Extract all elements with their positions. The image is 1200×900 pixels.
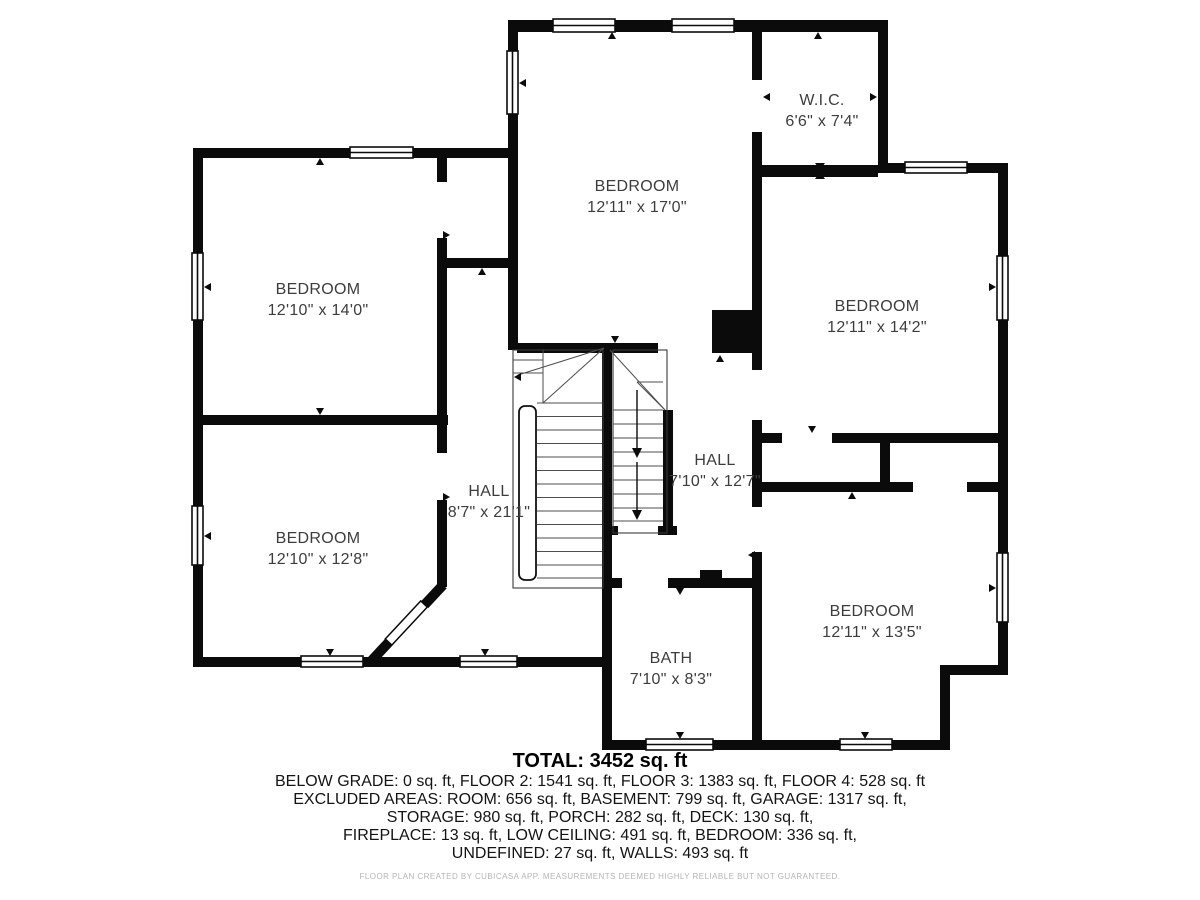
window: [192, 506, 203, 565]
room-label-hall-west: HALL 8'7" x 21'1": [448, 481, 530, 523]
window: [997, 553, 1008, 622]
window: [350, 147, 413, 158]
room-label-bedroom-upper-left: BEDROOM 12'10" x 14'0": [268, 279, 369, 321]
window: [507, 51, 518, 114]
summary-line: BELOW GRADE: 0 sq. ft, FLOOR 2: 1541 sq.…: [0, 773, 1200, 791]
floor-plan-drawing: [0, 0, 1200, 760]
room-dimensions: 7'10" x 12'7": [669, 471, 761, 492]
summary-line: FIREPLACE: 13 sq. ft, LOW CEILING: 491 s…: [0, 827, 1200, 845]
room-label-bedroom-lower-right: BEDROOM 12'11" x 13'5": [822, 601, 922, 643]
room-name: W.I.C.: [785, 90, 858, 111]
room-label-bedroom-lower-left: BEDROOM 12'10" x 12'8": [268, 528, 369, 570]
room-dimensions: 12'11" x 13'5": [822, 622, 922, 643]
room-dimensions: 7'10" x 8'3": [630, 669, 712, 690]
window: [553, 19, 615, 32]
summary-line: UNDEFINED: 27 sq. ft, WALLS: 493 sq. ft: [0, 845, 1200, 863]
window: [905, 162, 967, 173]
room-dimensions: 12'11" x 17'0": [587, 197, 687, 218]
window: [192, 253, 203, 320]
room-label-wic: W.I.C. 6'6" x 7'4": [785, 90, 858, 132]
staircase: [513, 348, 667, 588]
room-name: HALL: [669, 450, 761, 471]
room-dimensions: 12'10" x 12'8": [268, 549, 369, 570]
floor-plan-page: BEDROOM 12'10" x 14'0" BEDROOM 12'10" x …: [0, 0, 1200, 900]
room-label-hall-east: HALL 7'10" x 12'7": [669, 450, 761, 492]
summary-line: EXCLUDED AREAS: ROOM: 656 sq. ft, BASEME…: [0, 791, 1200, 809]
disclaimer-note: FLOOR PLAN CREATED BY CUBICASA APP. MEAS…: [0, 872, 1200, 881]
area-summary: TOTAL: 3452 sq. ft BELOW GRADE: 0 sq. ft…: [0, 749, 1200, 863]
room-name: BEDROOM: [827, 296, 927, 317]
summary-line: STORAGE: 980 sq. ft, PORCH: 282 sq. ft, …: [0, 809, 1200, 827]
room-dimensions: 6'6" x 7'4": [785, 111, 858, 132]
room-dimensions: 8'7" x 21'1": [448, 502, 530, 523]
room-dimensions: 12'11" x 14'2": [827, 317, 927, 338]
room-name: BEDROOM: [587, 176, 687, 197]
window: [301, 656, 363, 667]
room-name: BEDROOM: [822, 601, 922, 622]
total-area: TOTAL: 3452 sq. ft: [0, 749, 1200, 773]
room-name: HALL: [448, 481, 530, 502]
window: [997, 256, 1008, 320]
room-label-bedroom-top-center: BEDROOM 12'11" x 17'0": [587, 176, 687, 218]
diagonal-door: [368, 582, 447, 665]
room-label-bath: BATH 7'10" x 8'3": [630, 648, 712, 690]
room-name: BEDROOM: [268, 279, 369, 300]
room-name: BATH: [630, 648, 712, 669]
window: [672, 19, 734, 32]
room-dimensions: 12'10" x 14'0": [268, 300, 369, 321]
room-name: BEDROOM: [268, 528, 369, 549]
room-label-bedroom-right: BEDROOM 12'11" x 14'2": [827, 296, 927, 338]
window: [460, 656, 517, 667]
